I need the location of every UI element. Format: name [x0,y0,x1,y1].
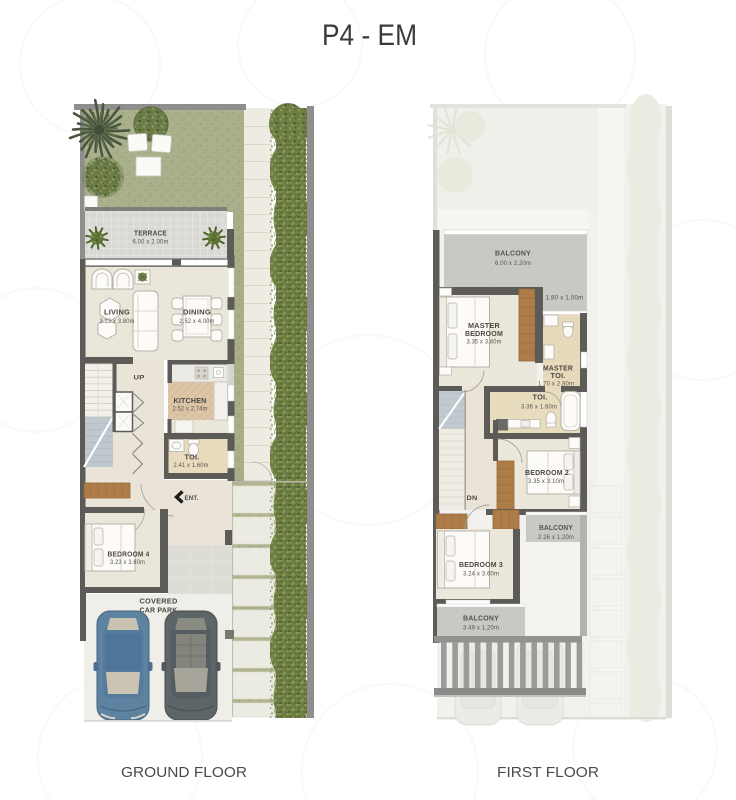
svg-text:BEDROOM 3: BEDROOM 3 [459,562,503,569]
svg-text:BALCONY: BALCONY [463,616,499,623]
svg-text:BEDROOM: BEDROOM [465,331,503,338]
svg-text:3.23 x 3.80m: 3.23 x 3.80m [100,318,135,325]
svg-text:P4 - EM: P4 - EM [322,19,417,52]
svg-text:3.35 x 3.80m: 3.35 x 3.80m [467,339,502,346]
svg-text:MASTER: MASTER [543,366,573,373]
svg-text:COVERED: COVERED [140,599,178,606]
svg-text:TOI.: TOI. [551,373,566,380]
svg-text:3.36 x 1.60m: 3.36 x 1.60m [521,404,557,411]
svg-text:KITCHEN: KITCHEN [174,398,207,405]
svg-text:BALCONY: BALCONY [495,251,531,258]
svg-text:TOI.: TOI. [185,455,200,462]
svg-text:3.49 x 1.20m: 3.49 x 1.20m [463,625,499,632]
svg-text:GROUND FLOOR: GROUND FLOOR [121,764,247,781]
svg-text:BEDROOM 2: BEDROOM 2 [525,470,569,477]
svg-text:6.00 x 2.00m: 6.00 x 2.00m [133,239,169,246]
svg-text:ENT.: ENT. [185,495,199,502]
svg-text:6.00 x 2.20m: 6.00 x 2.20m [495,260,531,267]
svg-text:2.41 x 1.60m: 2.41 x 1.60m [174,462,209,469]
svg-text:TERRACE: TERRACE [134,231,167,238]
svg-text:DN: DN [467,495,478,502]
svg-text:2.52 x 2.74m: 2.52 x 2.74m [173,406,208,413]
svg-text:DINING: DINING [183,310,211,317]
svg-text:UP: UP [134,375,146,382]
svg-text:BALCONY: BALCONY [539,525,573,532]
svg-text:TOI.: TOI. [533,395,548,402]
svg-text:2.26 x 1.20m: 2.26 x 1.20m [538,534,574,541]
svg-text:LIVING: LIVING [104,310,130,317]
svg-text:3.23 x 3.60m: 3.23 x 3.60m [110,559,145,566]
svg-text:3.24 x 3.60m: 3.24 x 3.60m [463,571,499,578]
svg-text:MASTER: MASTER [468,323,500,330]
svg-text:3.35 x 3.10m: 3.35 x 3.10m [528,478,564,485]
svg-text:BEDROOM 4: BEDROOM 4 [108,552,150,559]
svg-text:1.80 x 1.00m: 1.80 x 1.00m [546,295,584,302]
svg-text:2.52 x 4.00m: 2.52 x 4.00m [180,318,215,325]
svg-text:FIRST FLOOR: FIRST FLOOR [497,764,599,781]
